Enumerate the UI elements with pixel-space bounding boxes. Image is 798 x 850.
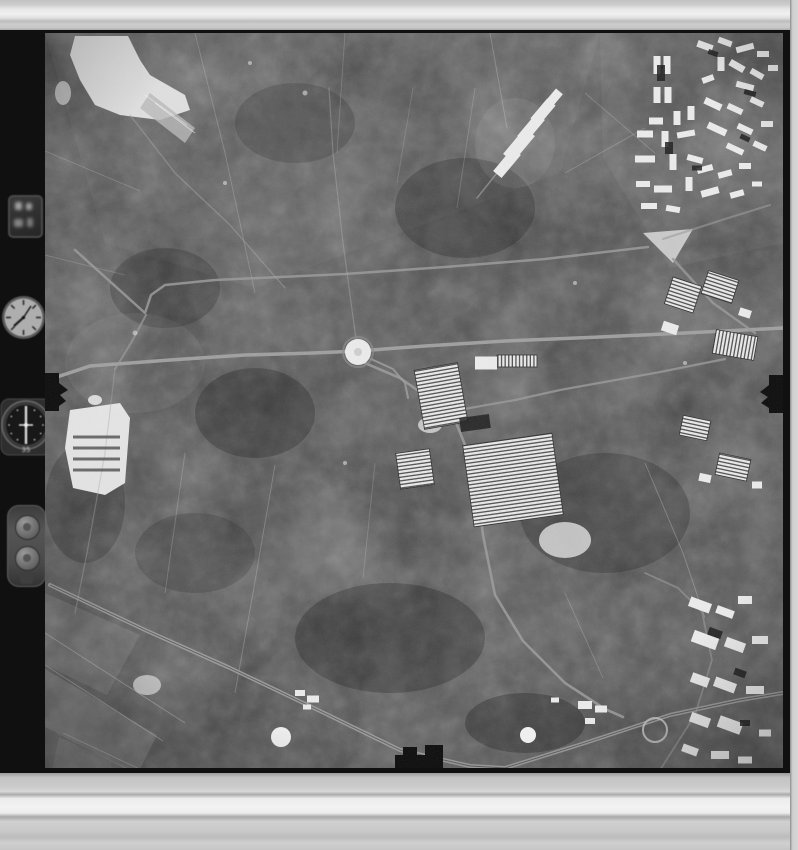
counter-digit-blur [15,202,22,210]
scanner-background-top [0,0,798,31]
level-mount [20,572,33,584]
scanner-background-right [790,0,798,850]
aerial-photo-frame [45,33,783,768]
frame-counter [8,195,43,238]
level-bubble-top [15,515,40,540]
level-bubble-bottom [15,546,40,571]
film-sheet: 35 7-32 [0,30,790,773]
aerial-photo [45,33,783,768]
scanner-background-bottom [0,773,798,850]
counter-digit-blur [27,218,33,227]
counter-digit-blur [14,219,23,227]
scanned-aerial-film-sheet: { "meta": { "type": "scanned monochrome … [0,0,798,850]
vignette [45,33,783,768]
clock-dial [1,295,46,340]
bubble-level [7,505,46,587]
altimeter-reading: 35 [22,446,31,454]
counter-digit-blur [26,203,32,210]
